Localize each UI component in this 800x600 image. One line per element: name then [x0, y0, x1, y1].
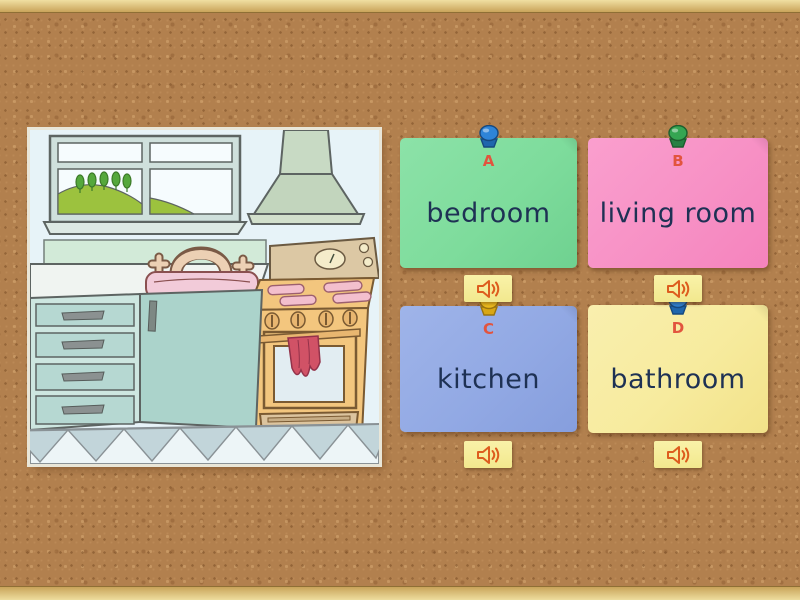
speaker-icon [475, 279, 501, 299]
card-label: kitchen [437, 337, 540, 432]
card-label: bedroom [426, 169, 550, 268]
answer-card-b[interactable]: B living room [588, 138, 768, 268]
answer-card-a[interactable]: A bedroom [400, 138, 577, 268]
speaker-icon [665, 445, 691, 465]
floor-trim [30, 424, 379, 464]
speaker-icon [475, 445, 501, 465]
cabinets [30, 290, 262, 430]
audio-button-a[interactable] [464, 275, 512, 302]
audio-button-b[interactable] [654, 275, 702, 302]
window [44, 136, 246, 234]
answer-card-d[interactable]: D bathroom [588, 305, 768, 433]
pushpin-icon [666, 125, 690, 153]
audio-button-d[interactable] [654, 441, 702, 468]
pushpin-icon [477, 125, 501, 153]
card-letter: A [483, 154, 495, 169]
speaker-icon [665, 279, 691, 299]
card-letter: C [483, 322, 494, 337]
audio-button-c[interactable] [464, 441, 512, 468]
kitchen-illustration [30, 130, 379, 464]
card-label: bathroom [610, 336, 745, 433]
card-label: living room [600, 169, 757, 268]
frame-top [0, 0, 800, 13]
corkboard: A bedroom B living room C kitchen D bath… [0, 0, 800, 600]
kitchen-scene-svg [30, 130, 379, 464]
answer-card-c[interactable]: C kitchen [400, 306, 577, 432]
card-letter: B [672, 154, 683, 169]
card-letter: D [672, 321, 684, 336]
frame-bottom [0, 586, 800, 600]
